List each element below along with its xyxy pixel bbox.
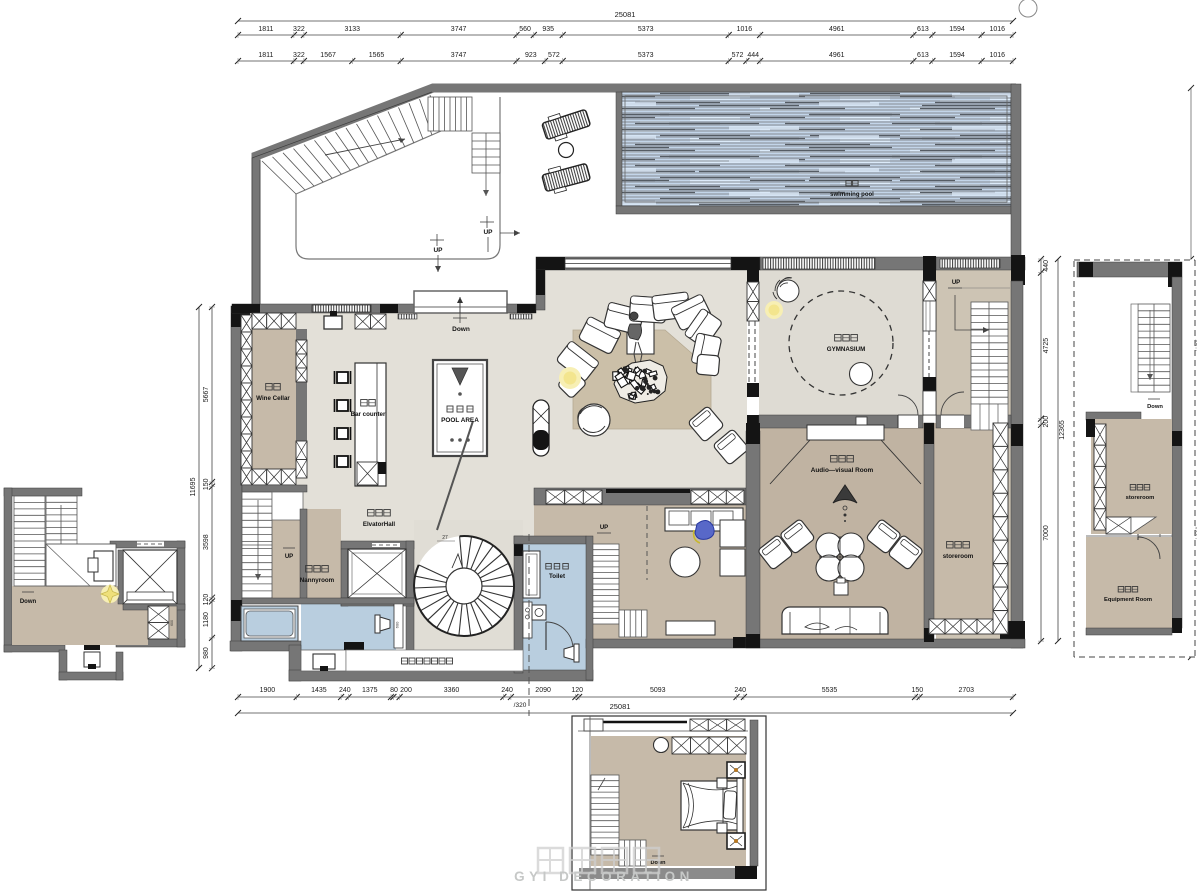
svg-text:Audio—visual Room: Audio—visual Room <box>811 467 874 474</box>
svg-text:120: 120 <box>203 594 210 606</box>
svg-text:4961: 4961 <box>829 52 845 59</box>
svg-text:UP: UP <box>600 525 608 531</box>
svg-text:Down: Down <box>20 599 37 605</box>
svg-text:1811: 1811 <box>258 52 273 59</box>
svg-text:1016: 1016 <box>990 26 1006 33</box>
svg-text:240: 240 <box>339 687 351 694</box>
svg-text:1016: 1016 <box>737 26 753 33</box>
svg-text:5535: 5535 <box>822 687 838 694</box>
svg-text:11695: 11695 <box>190 477 197 496</box>
svg-text:240: 240 <box>501 687 513 694</box>
svg-text:3598: 3598 <box>203 534 210 550</box>
svg-text:5667: 5667 <box>203 387 210 403</box>
svg-text:560: 560 <box>519 26 531 33</box>
svg-text:120: 120 <box>571 687 583 694</box>
svg-text:1900: 1900 <box>260 687 276 694</box>
svg-text:322: 322 <box>293 26 305 33</box>
svg-text:POOL AREA: POOL AREA <box>441 417 479 424</box>
svg-text:923: 923 <box>525 52 537 59</box>
svg-text:1375: 1375 <box>362 687 378 694</box>
svg-text:322: 322 <box>293 52 305 59</box>
svg-text:80: 80 <box>390 687 398 694</box>
svg-text:440: 440 <box>1043 260 1050 272</box>
svg-text:613: 613 <box>917 52 929 59</box>
svg-text:572: 572 <box>732 52 744 59</box>
svg-text:swimming pool: swimming pool <box>830 192 874 198</box>
svg-text:2090: 2090 <box>535 687 551 694</box>
svg-text:UP: UP <box>483 229 493 236</box>
svg-text:1435: 1435 <box>311 687 327 694</box>
svg-text:UP: UP <box>433 247 443 254</box>
svg-text:1565: 1565 <box>369 52 385 59</box>
svg-text:storeroom: storeroom <box>943 553 974 560</box>
svg-text:4961: 4961 <box>829 26 845 33</box>
svg-text:Wine Cellar: Wine Cellar <box>256 395 290 402</box>
svg-text:ElvatorHall: ElvatorHall <box>363 521 396 528</box>
svg-text:1567: 1567 <box>320 52 336 59</box>
svg-text:613: 613 <box>917 26 929 33</box>
svg-text:3360: 3360 <box>444 687 460 694</box>
svg-text:200: 200 <box>400 687 412 694</box>
svg-text:storeroom: storeroom <box>1126 495 1155 501</box>
svg-text:7000: 7000 <box>1043 525 1050 541</box>
svg-text:1594: 1594 <box>949 26 965 33</box>
svg-text:1180: 1180 <box>203 612 210 627</box>
svg-text:200: 200 <box>1043 416 1050 428</box>
svg-text:Nannyroom: Nannyroom <box>300 577 335 584</box>
svg-text:25081: 25081 <box>615 10 636 19</box>
svg-text:1016: 1016 <box>990 52 1006 59</box>
svg-text:1811: 1811 <box>258 26 273 33</box>
svg-text:5373: 5373 <box>638 26 654 33</box>
svg-text:GYI DECORATION: GYI DECORATION <box>514 869 694 884</box>
svg-text:150: 150 <box>203 478 210 490</box>
svg-text:5373: 5373 <box>638 52 654 59</box>
svg-text:4725: 4725 <box>1043 338 1050 354</box>
svg-text:UP: UP <box>285 554 293 560</box>
svg-text:600: 600 <box>170 620 174 626</box>
svg-text:600: 600 <box>395 621 400 628</box>
svg-text:3747: 3747 <box>451 26 467 33</box>
svg-text:27: 27 <box>442 535 448 541</box>
svg-text:3133: 3133 <box>345 26 361 33</box>
svg-text:935: 935 <box>542 26 554 33</box>
svg-text:25081: 25081 <box>610 702 631 711</box>
svg-text:12365: 12365 <box>1059 420 1066 440</box>
svg-text:572: 572 <box>548 52 560 59</box>
svg-text:980: 980 <box>203 647 210 659</box>
svg-text:5093: 5093 <box>650 687 666 694</box>
svg-text:3747: 3747 <box>451 52 467 59</box>
svg-text:Toilet: Toilet <box>549 573 565 580</box>
svg-text:2703: 2703 <box>959 687 975 694</box>
svg-text:Bar counter: Bar counter <box>351 411 386 418</box>
svg-text:Down: Down <box>452 326 470 333</box>
svg-text:Down: Down <box>1147 404 1163 410</box>
svg-text:GYMNASIUM: GYMNASIUM <box>827 346 866 353</box>
svg-text:Equipment Room: Equipment Room <box>1104 597 1152 603</box>
svg-text:/320: /320 <box>514 702 527 709</box>
svg-text:444: 444 <box>747 52 759 59</box>
svg-text:UP: UP <box>952 280 960 286</box>
svg-text:240: 240 <box>734 687 746 694</box>
svg-text:1594: 1594 <box>949 52 965 59</box>
svg-text:150: 150 <box>911 687 923 694</box>
